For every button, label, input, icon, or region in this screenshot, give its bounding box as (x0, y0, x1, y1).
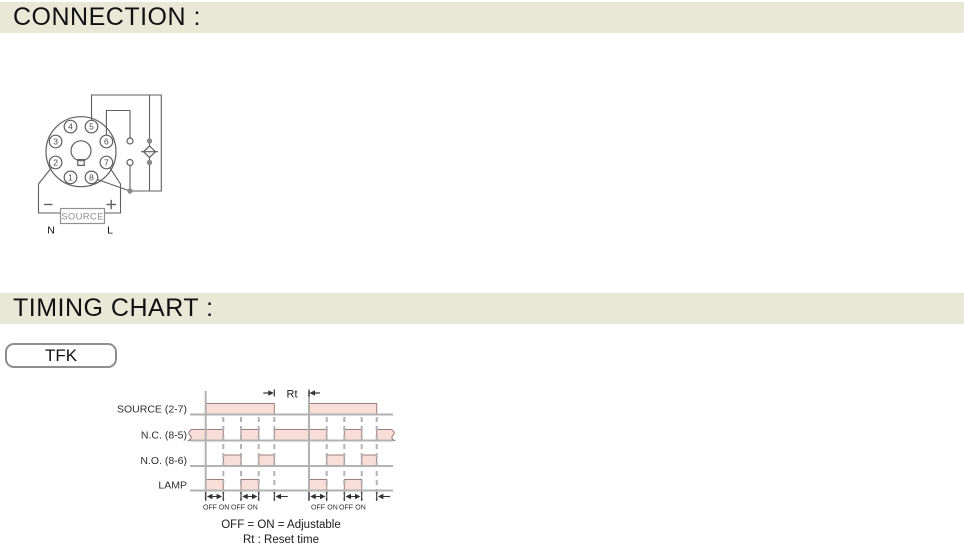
connection-diagram: SOURCE N L 1 2 3 4 5 6 7 8 (20, 85, 180, 240)
waveform-pulse (309, 480, 327, 491)
connection-section-header: CONNECTION : (0, 2, 964, 33)
waveform-pulse (327, 455, 345, 466)
interval-state-label: OFF (203, 505, 217, 512)
pin-1-number: 1 (68, 172, 73, 182)
return-dot (127, 188, 132, 193)
model-label: TFK (45, 346, 77, 365)
contact-upper (127, 138, 133, 144)
timing-row-label: N.O. (8-6) (140, 455, 187, 467)
connection-title: CONNECTION : (13, 3, 201, 31)
waveform-pulse (362, 455, 377, 466)
interval-state-label: ON (355, 505, 366, 512)
interval-state-label: ON (247, 505, 258, 512)
note-reset-time: Rt : Reset time (100, 533, 462, 548)
lamp-dot-top (147, 138, 152, 143)
interval-state-label: OFF (231, 505, 245, 512)
arrowhead-left (242, 494, 248, 500)
wire-pin8 (97, 180, 130, 192)
waveform-pulse (206, 404, 275, 415)
timing-section-header: TIMING CHART : (0, 293, 964, 324)
arrowhead-left (310, 494, 316, 500)
waveform-pulse (241, 480, 259, 491)
arrowhead-right (268, 390, 274, 396)
arrowhead-right (252, 494, 258, 500)
timing-row-label: N.C. (8-5) (141, 430, 187, 442)
waveform-pulse (223, 455, 241, 466)
pin-5-number: 5 (89, 122, 94, 132)
pin-7-number: 7 (104, 158, 109, 168)
arrowhead-left (378, 494, 384, 500)
arrowhead-right (217, 494, 223, 500)
pin-3-number: 3 (53, 137, 58, 147)
arrowhead-right (355, 494, 361, 500)
waveform-pulse (344, 430, 361, 441)
timing-notes: OFF = ON = Adjustable Rt : Reset time (100, 518, 462, 548)
waveform-pulse (206, 480, 224, 491)
arrowhead-right (320, 494, 326, 500)
interval-state-label: OFF (311, 505, 325, 512)
waveform-pulse-break (377, 430, 395, 441)
interval-state-label: ON (327, 505, 338, 512)
socket (46, 117, 158, 187)
socket-outline (46, 117, 116, 187)
wires (39, 95, 162, 213)
timing-row-label: SOURCE (2-7) (117, 404, 187, 416)
model-badge: TFK (5, 343, 117, 368)
waveform-pulse (241, 430, 259, 441)
pin-4-number: 4 (68, 122, 73, 132)
note-adjustable: OFF = ON = Adjustable (100, 518, 462, 533)
contact-lower (127, 160, 133, 166)
timing-row-label: LAMP (158, 480, 187, 492)
timing-title: TIMING CHART : (13, 294, 214, 322)
waveform-pulse (309, 404, 377, 415)
arrowhead-left (346, 494, 352, 500)
datasheet-page: CONNECTION : (0, 0, 964, 553)
rt-label: Rt (287, 389, 298, 401)
interval-state-label: ON (219, 505, 230, 512)
polarity-symbols (44, 200, 116, 209)
socket-keyhole (71, 141, 91, 161)
source-label: SOURCE (61, 212, 103, 223)
pin-numbers: 1 2 3 4 5 6 7 8 (53, 122, 109, 183)
interval-state-label: OFF (339, 505, 353, 512)
line-label: L (107, 225, 113, 237)
pin-6-number: 6 (104, 137, 109, 147)
waveform-pulse (274, 430, 326, 441)
arrowhead-left (276, 494, 282, 500)
wire-pin2-source (39, 167, 61, 213)
neutral-label: N (47, 225, 55, 237)
arrowhead-left (207, 494, 213, 500)
wire-pin6-contact (106, 111, 130, 139)
arrowhead-left (310, 390, 316, 396)
waveform-pulse (344, 480, 361, 491)
pin-8-number: 8 (89, 172, 94, 182)
pin-2-number: 2 (53, 158, 58, 168)
lamp-dot-bottom (147, 160, 152, 165)
waveform-pulse (259, 455, 275, 466)
